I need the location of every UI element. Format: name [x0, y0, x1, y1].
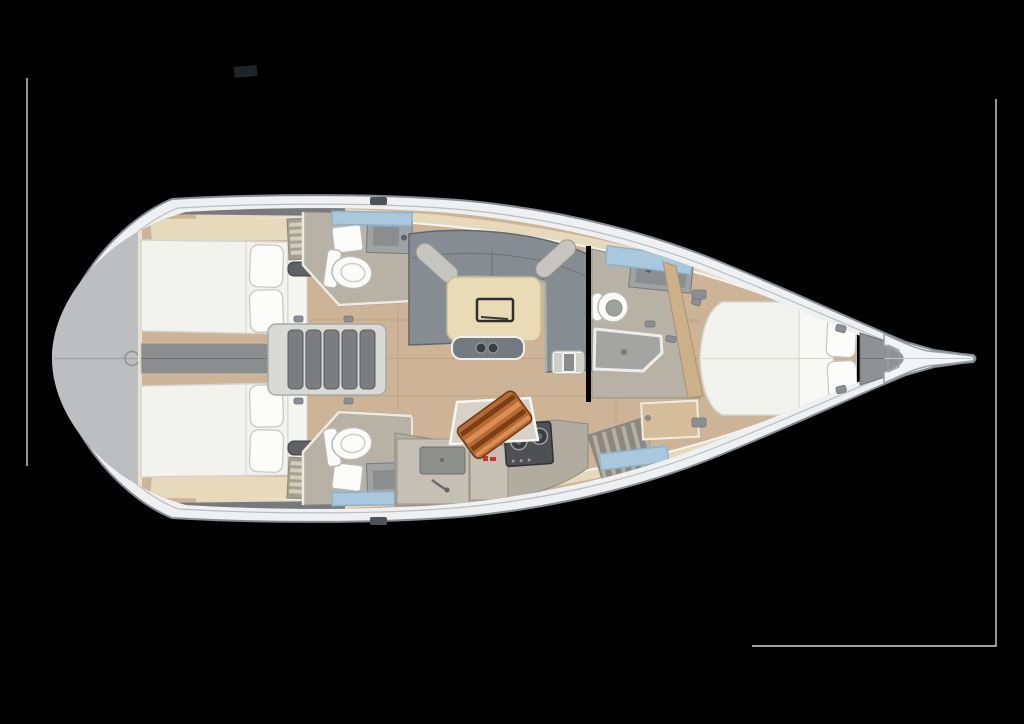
door-handle: [344, 316, 353, 322]
brand-mark: [490, 457, 496, 461]
door-handle: [645, 321, 655, 327]
mast-mark: [234, 65, 258, 78]
pillow: [249, 244, 283, 287]
sink-drain: [440, 458, 444, 462]
salon-table: [447, 277, 541, 341]
shower-drain: [621, 349, 627, 355]
stair-tread: [342, 330, 357, 389]
stair-tread: [306, 330, 321, 389]
deck-hatch-mark: [370, 517, 387, 525]
stair-tread: [324, 330, 339, 389]
pillow: [249, 429, 283, 472]
shower-pan: [594, 329, 662, 371]
door-handle: [294, 316, 303, 322]
shower-mat: [332, 462, 364, 491]
deck-fitting: [692, 290, 706, 299]
sink-basin: [373, 226, 400, 246]
canvas: [0, 0, 1024, 724]
faucet-base: [445, 488, 450, 493]
sofa-seat-edge: [545, 282, 546, 372]
deck-plan: [0, 0, 1024, 724]
deck-fitting: [692, 418, 706, 427]
cup: [476, 343, 486, 353]
companionway-stairs: [268, 316, 386, 404]
door-handle: [294, 398, 303, 404]
shower-mat: [332, 224, 364, 253]
nav-stool: [552, 351, 584, 374]
door-handle: [344, 398, 353, 404]
hull-window: [332, 211, 412, 225]
head-wall: [586, 246, 591, 402]
stair-tread: [360, 330, 375, 389]
toilet-bowl-inner: [606, 300, 622, 316]
door-handle: [666, 335, 677, 343]
deck-hatch-mark: [370, 197, 387, 205]
cup: [488, 343, 498, 353]
stair-tread: [288, 330, 303, 389]
door-knob: [646, 416, 651, 421]
